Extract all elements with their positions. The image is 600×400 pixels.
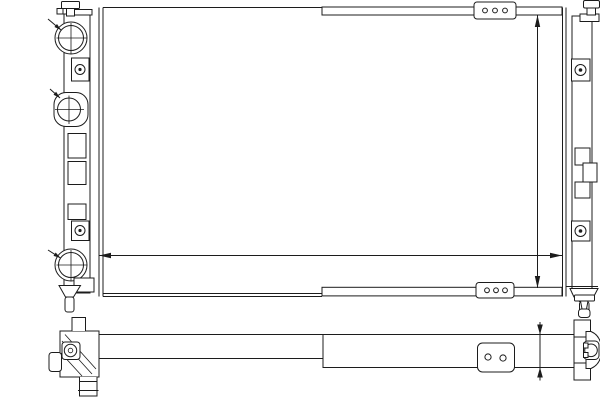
left-drain-funnel: [59, 286, 81, 298]
left-tank-panel: [68, 162, 86, 185]
label-inlet: [48, 19, 61, 30]
radiator-front-view: [48, 1, 600, 314]
side-bleed-bar: [575, 295, 595, 301]
left-fitting-lug: [49, 353, 62, 372]
left-fitting-tab: [72, 318, 86, 332]
top-strip-band: [322, 7, 562, 15]
right-bracket-bottom-pin: [579, 229, 583, 233]
right-fitting-clip: [584, 343, 589, 348]
left-fitting-pipe: [80, 377, 98, 396]
left-drain-plug: [65, 297, 74, 312]
right-tank-tab: [583, 163, 597, 182]
bleed-connector: [74, 10, 92, 16]
left-bracket-top-pin: [78, 68, 81, 71]
arrowhead-right: [550, 253, 562, 258]
right-bracket-top-pin: [579, 68, 583, 72]
label-thread: [50, 89, 60, 98]
label-outlet: [48, 250, 61, 258]
side-view-core-section: [323, 335, 574, 368]
bleed-screw-nub: [57, 9, 63, 15]
radiator-side-view: [49, 295, 600, 396]
top-fastener-strip: [322, 2, 562, 19]
dimension-core-height: [535, 15, 540, 288]
arrowhead-down: [535, 276, 540, 288]
dimension-annotations-front: [48, 15, 562, 288]
dimension-core-width: [99, 253, 562, 258]
side-bleed-nub: [579, 309, 591, 318]
side-view-left-fitting: [49, 318, 99, 397]
side-view-tube: [99, 335, 323, 359]
arrowhead-up: [535, 15, 540, 27]
side-view-right-fitting: [574, 295, 600, 380]
right-fitting-clip: [584, 353, 589, 358]
bleed-screw-head: [62, 2, 80, 9]
top-mounting-plate: [474, 2, 516, 19]
side-bleed-stem: [581, 301, 589, 309]
left-fitting-port: [64, 344, 76, 356]
radiator-technical-drawing: [0, 0, 600, 400]
filler-cap: [584, 1, 600, 9]
filler-cap-stem: [587, 8, 596, 16]
radiator-core: [99, 8, 566, 297]
left-tank: [54, 2, 94, 313]
arrowhead-down: [537, 325, 543, 335]
side-plate: [478, 343, 515, 372]
arrowhead-up: [537, 368, 543, 378]
bottom-strip-band: [322, 287, 562, 296]
right-tank: [566, 1, 600, 314]
arrowhead-left: [99, 253, 111, 258]
right-tank-tab: [575, 182, 590, 198]
bleed-screw-stem: [67, 8, 75, 16]
side-view-mounting-plate: [478, 343, 515, 372]
bottom-fastener-strip: [322, 283, 562, 299]
left-tank-panel: [68, 204, 86, 220]
bottom-mounting-plate: [476, 283, 514, 299]
left-bracket-bottom-pin: [78, 229, 81, 232]
left-tank-panel: [68, 134, 86, 159]
right-tank-tab: [575, 148, 590, 165]
